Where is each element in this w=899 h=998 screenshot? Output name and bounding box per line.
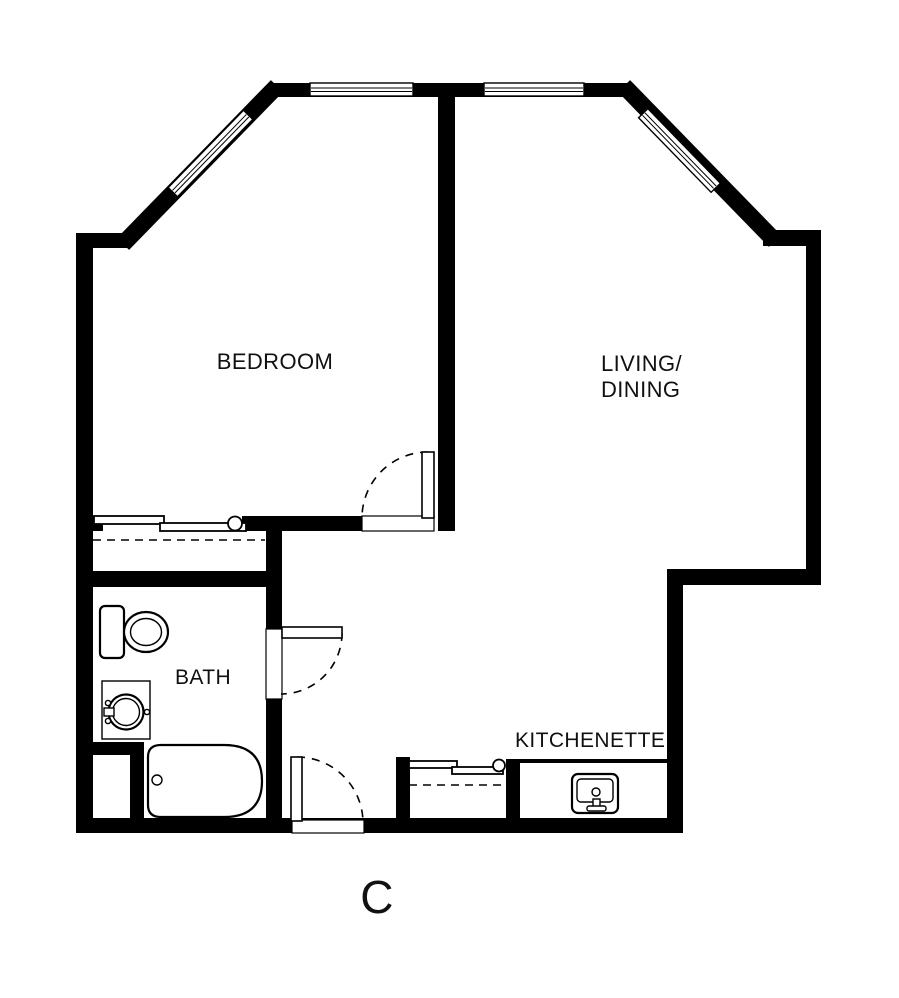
floor-plan-page: BEDROOM LIVING/ DINING BATH KITCHENETTE … [0, 0, 899, 998]
unit-label: C [360, 871, 394, 923]
vanity-sink-icon [102, 681, 150, 739]
floor-plan-drawing: BEDROOM LIVING/ DINING BATH KITCHENETTE … [0, 0, 899, 998]
kitchenette-fixtures [572, 774, 618, 813]
kitchen-sink-icon [572, 774, 618, 813]
bathtub-icon [148, 745, 262, 817]
bath-door [266, 627, 342, 699]
tub-drain [152, 775, 162, 785]
walls [76, 83, 821, 833]
toilet-icon [100, 606, 168, 658]
wall-step [667, 569, 821, 585]
bedroom-closet-sliding-doors [93, 516, 265, 540]
living-dining-label-line1: LIVING/ [601, 351, 683, 376]
wall-bottom [76, 818, 683, 833]
wall-bedroom-living-divider [438, 95, 455, 531]
sliding-door-knob [493, 760, 505, 772]
sliding-door-knob [228, 517, 242, 531]
wall-right-lower [667, 569, 683, 833]
window-diagonal-left [168, 110, 253, 196]
window-top-left [310, 83, 413, 96]
living-dining-label-line2: DINING [601, 377, 680, 402]
wall-kcloset-west [396, 757, 410, 820]
wall-kcloset-east [506, 759, 520, 820]
counter-front-edge [506, 759, 682, 763]
labels: BEDROOM LIVING/ DINING BATH KITCHENETTE … [175, 349, 683, 923]
window-top-right [484, 83, 584, 96]
wall-right [806, 230, 821, 585]
wall-bath-closet-divider [130, 753, 144, 820]
wall-closet-bottom [76, 571, 282, 587]
bath-label: BATH [175, 666, 231, 689]
bath-fixtures [100, 606, 262, 817]
window-diagonal-right [639, 109, 721, 193]
wall-bedroom-south [242, 516, 364, 531]
bedroom-door [362, 452, 434, 531]
entry-door [291, 757, 364, 833]
wall-hall-lower [266, 698, 282, 833]
kitchenette-label: KITCHENETTE [515, 729, 665, 752]
bedroom-label: BEDROOM [217, 349, 333, 374]
kitchenette-closet-sliding-doors [409, 760, 505, 786]
